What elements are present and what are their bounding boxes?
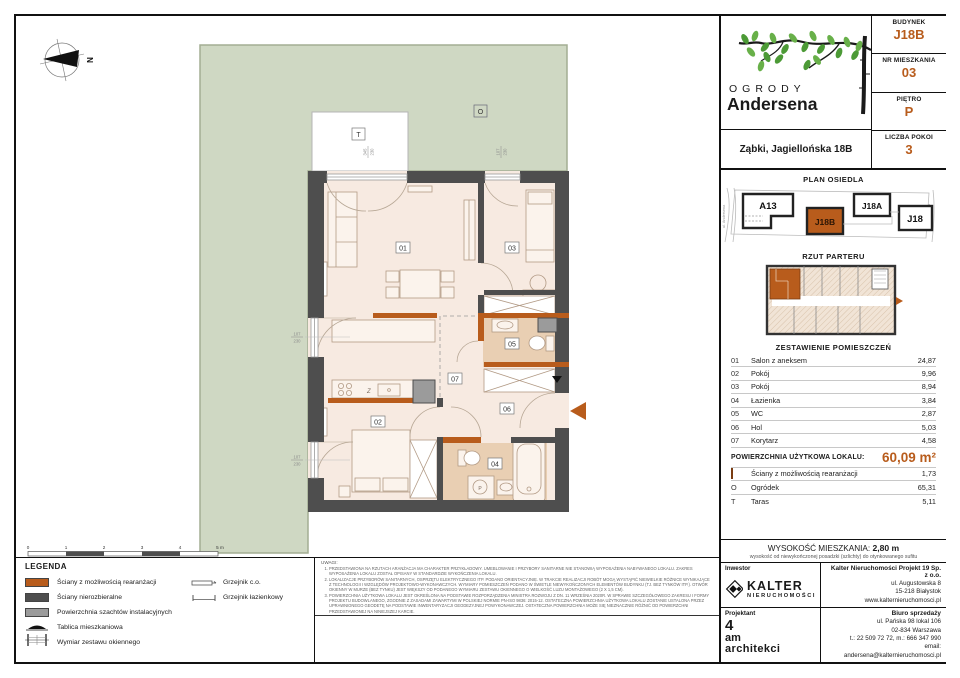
info-floor: PIĘTROP	[872, 93, 946, 131]
svg-text:3: 3	[141, 545, 144, 550]
apartment-height-note: WYSOKOŚĆ MIESZKANIA: 2,80 m wysokość od …	[721, 539, 946, 562]
investor-label: Inwestor	[725, 565, 816, 572]
highlighted-unit	[770, 269, 800, 299]
rooms-table-title: ZESTAWIENIE POMIESZCZEŃ	[731, 341, 936, 354]
svg-text:06: 06	[503, 407, 511, 414]
notes-title: UWAGI:	[321, 560, 713, 565]
legend-title: LEGENDA	[25, 562, 305, 571]
usable-area-value: 60,09 m²	[882, 450, 936, 465]
sales-phone: t.: 22 509 72 72, m.: 666 347 990	[826, 635, 941, 643]
legend-item: Wymiar zestawu okiennego	[25, 635, 191, 650]
brand-logo: OGRODY Andersena	[721, 16, 871, 130]
svg-text:J18B: J18B	[815, 217, 835, 227]
solid-wall-swatch	[25, 593, 49, 602]
svg-text:230: 230	[294, 339, 302, 344]
kalter-diamond-icon	[725, 576, 743, 602]
legend: LEGENDA Ściany z możliwością rearanżacji…	[16, 558, 315, 662]
table-row: TTaras5,11	[731, 495, 936, 508]
svg-text:2: 2	[103, 545, 106, 550]
sales-office-details: Biuro sprzedaży ul. Pańska 98 lokal 106 …	[821, 608, 946, 662]
site-plan-map: ul. Andersena ul. Jagiellońska A13 J18B …	[721, 186, 946, 246]
table-row: 07Korytarz4,58	[731, 434, 936, 447]
svg-text:1: 1	[65, 545, 68, 550]
table-row: 06Hol5,03	[731, 421, 936, 434]
svg-text:04: 04	[491, 462, 499, 469]
svg-text:07: 07	[451, 377, 459, 384]
project-address: Ząbki, Jagiellońska 18B	[721, 130, 871, 168]
svg-text:345: 345	[363, 148, 368, 156]
site-plan: PLAN OSIEDLA ul. Andersena ul. Jagielloń…	[721, 170, 946, 247]
table-row: 02Pokój9,96	[731, 367, 936, 380]
table-row: 03Pokój8,94	[731, 381, 936, 394]
designer-label: Projektant	[725, 610, 816, 617]
rearrangeable-wall-swatch	[25, 578, 49, 587]
note-item: Niniejsza karta katalogowa została oprac…	[329, 614, 713, 616]
height-label: WYSOKOŚĆ MIESZKANIA:	[768, 544, 870, 553]
info-building: BUDYNEKJ18B	[872, 16, 946, 54]
footer: Inwestor KALTER nieruchomości	[721, 562, 946, 662]
designer-cell: Projektant 4 am architekci	[721, 608, 821, 662]
floor-overview-map	[764, 263, 904, 337]
north-compass-icon: N	[40, 39, 94, 81]
svg-text:5 m: 5 m	[216, 545, 224, 550]
scale-bar: 0 1 2 3 4 5 m	[27, 545, 224, 556]
svg-text:230: 230	[370, 148, 375, 156]
table-row: 04Łazienka3,84	[731, 394, 936, 407]
floor-overview-title: RZUT PARTERU	[721, 247, 946, 263]
svg-text:107: 107	[496, 148, 501, 156]
height-value: 2,80 m	[872, 543, 899, 553]
company-website[interactable]: www.kalternieruchomosci.pl	[826, 597, 941, 605]
floor-plan-drawing: T O	[16, 16, 719, 557]
site-plan-title: PLAN OSIEDLA	[721, 170, 946, 186]
rooms-table: ZESTAWIENIE POMIESZCZEŃ 01Salon z anekse…	[721, 339, 946, 508]
company-details: Kalter Nieruchomości Projekt 19 Sp. z o.…	[821, 563, 946, 607]
svg-text:230: 230	[503, 148, 508, 156]
svg-text:107: 107	[294, 332, 302, 337]
sidebar: OGRODY Andersena Ząbki, Jagiellońska 18B…	[719, 16, 946, 662]
legend-item: Tablica mieszkaniowa	[25, 620, 191, 635]
north-label: N	[85, 57, 94, 63]
kalter-logo: KALTER nieruchomości	[725, 576, 816, 602]
legend-item: Powierzchnia szachtów instalacyjnych	[25, 605, 191, 620]
bottom-strip: LEGENDA Ściany z możliwością rearanżacji…	[16, 557, 719, 662]
garden-label: O	[478, 109, 484, 116]
notes: UWAGI: Przedstawiona na rzutach aranżacj…	[315, 558, 719, 616]
legend-item: Grzejnik łazienkowy	[191, 590, 283, 605]
usable-area-row: POWIERZCHNIA UŻYTKOWA LOKALU: 60,09 m²	[731, 448, 936, 468]
legend-item: Ściany z możliwością rearanżacji	[25, 575, 191, 590]
table-row: 05WC2,87	[731, 408, 936, 421]
note-item: Powierzchnia użytkowa lokalu jest określ…	[329, 593, 713, 614]
svg-text:230: 230	[294, 462, 302, 467]
legend-item: Ściany nierozbieralne	[25, 590, 191, 605]
info-rooms-count: LICZBA POKOI3	[872, 131, 946, 168]
svg-text:J18: J18	[907, 214, 923, 225]
street-left-label: ul. Andersena	[722, 204, 726, 228]
radiator-bathroom-icon	[191, 589, 215, 607]
rearrangeable-wall-swatch	[731, 468, 733, 479]
svg-text:01: 01	[399, 246, 407, 253]
table-row: OOgródek65,31	[731, 481, 936, 494]
svg-text:05: 05	[508, 342, 516, 349]
svg-text:0: 0	[27, 545, 30, 550]
header: OGRODY Andersena Ząbki, Jagiellońska 18B…	[721, 16, 946, 170]
table-row: Ściany z możliwością rearanżacji1,73	[731, 468, 936, 481]
floor-entrance-arrow	[896, 297, 903, 305]
info-unit-number: NR MIESZKANIA03	[872, 54, 946, 92]
svg-text:J18A: J18A	[862, 201, 882, 211]
investor-cell: Inwestor KALTER nieruchomości	[721, 563, 821, 607]
terrace-area: T	[312, 112, 408, 171]
apartment-card-sheet: T O	[0, 0, 960, 678]
note-item: Przedstawiona na rzutach aranżacja ma ch…	[329, 566, 713, 577]
shaft-swatch	[25, 608, 49, 617]
svg-text:A13: A13	[759, 201, 776, 212]
table-row: 01Salon z aneksem24,87	[731, 354, 936, 367]
tree-branch-illustration: OGRODY Andersena	[721, 16, 871, 130]
brand-bottom: Andersena	[727, 94, 818, 114]
window-dimension-icon	[25, 632, 49, 653]
4am-architekci-logo: 4 am architekci	[725, 619, 816, 654]
svg-text:4: 4	[179, 545, 182, 550]
kitchen-sink-symbol: Z	[366, 389, 371, 395]
svg-text:107: 107	[294, 455, 302, 460]
svg-text:02: 02	[374, 420, 382, 427]
floor-overview: RZUT PARTERU	[721, 247, 946, 339]
terrace-label: T	[356, 132, 361, 139]
height-subtitle: wysokość od niewykończonej posadzki (szl…	[725, 554, 942, 560]
note-item: Lokalizacje przyborów sanitarnych, osprz…	[329, 577, 713, 593]
entrance-arrow	[570, 402, 586, 420]
svg-text:03: 03	[508, 246, 516, 253]
sales-email[interactable]: email: andersena@kalternieruchomosci.pl	[826, 643, 941, 660]
unit-info: BUDYNEKJ18B NR MIESZKANIA03 PIĘTROP LICZ…	[872, 16, 946, 168]
